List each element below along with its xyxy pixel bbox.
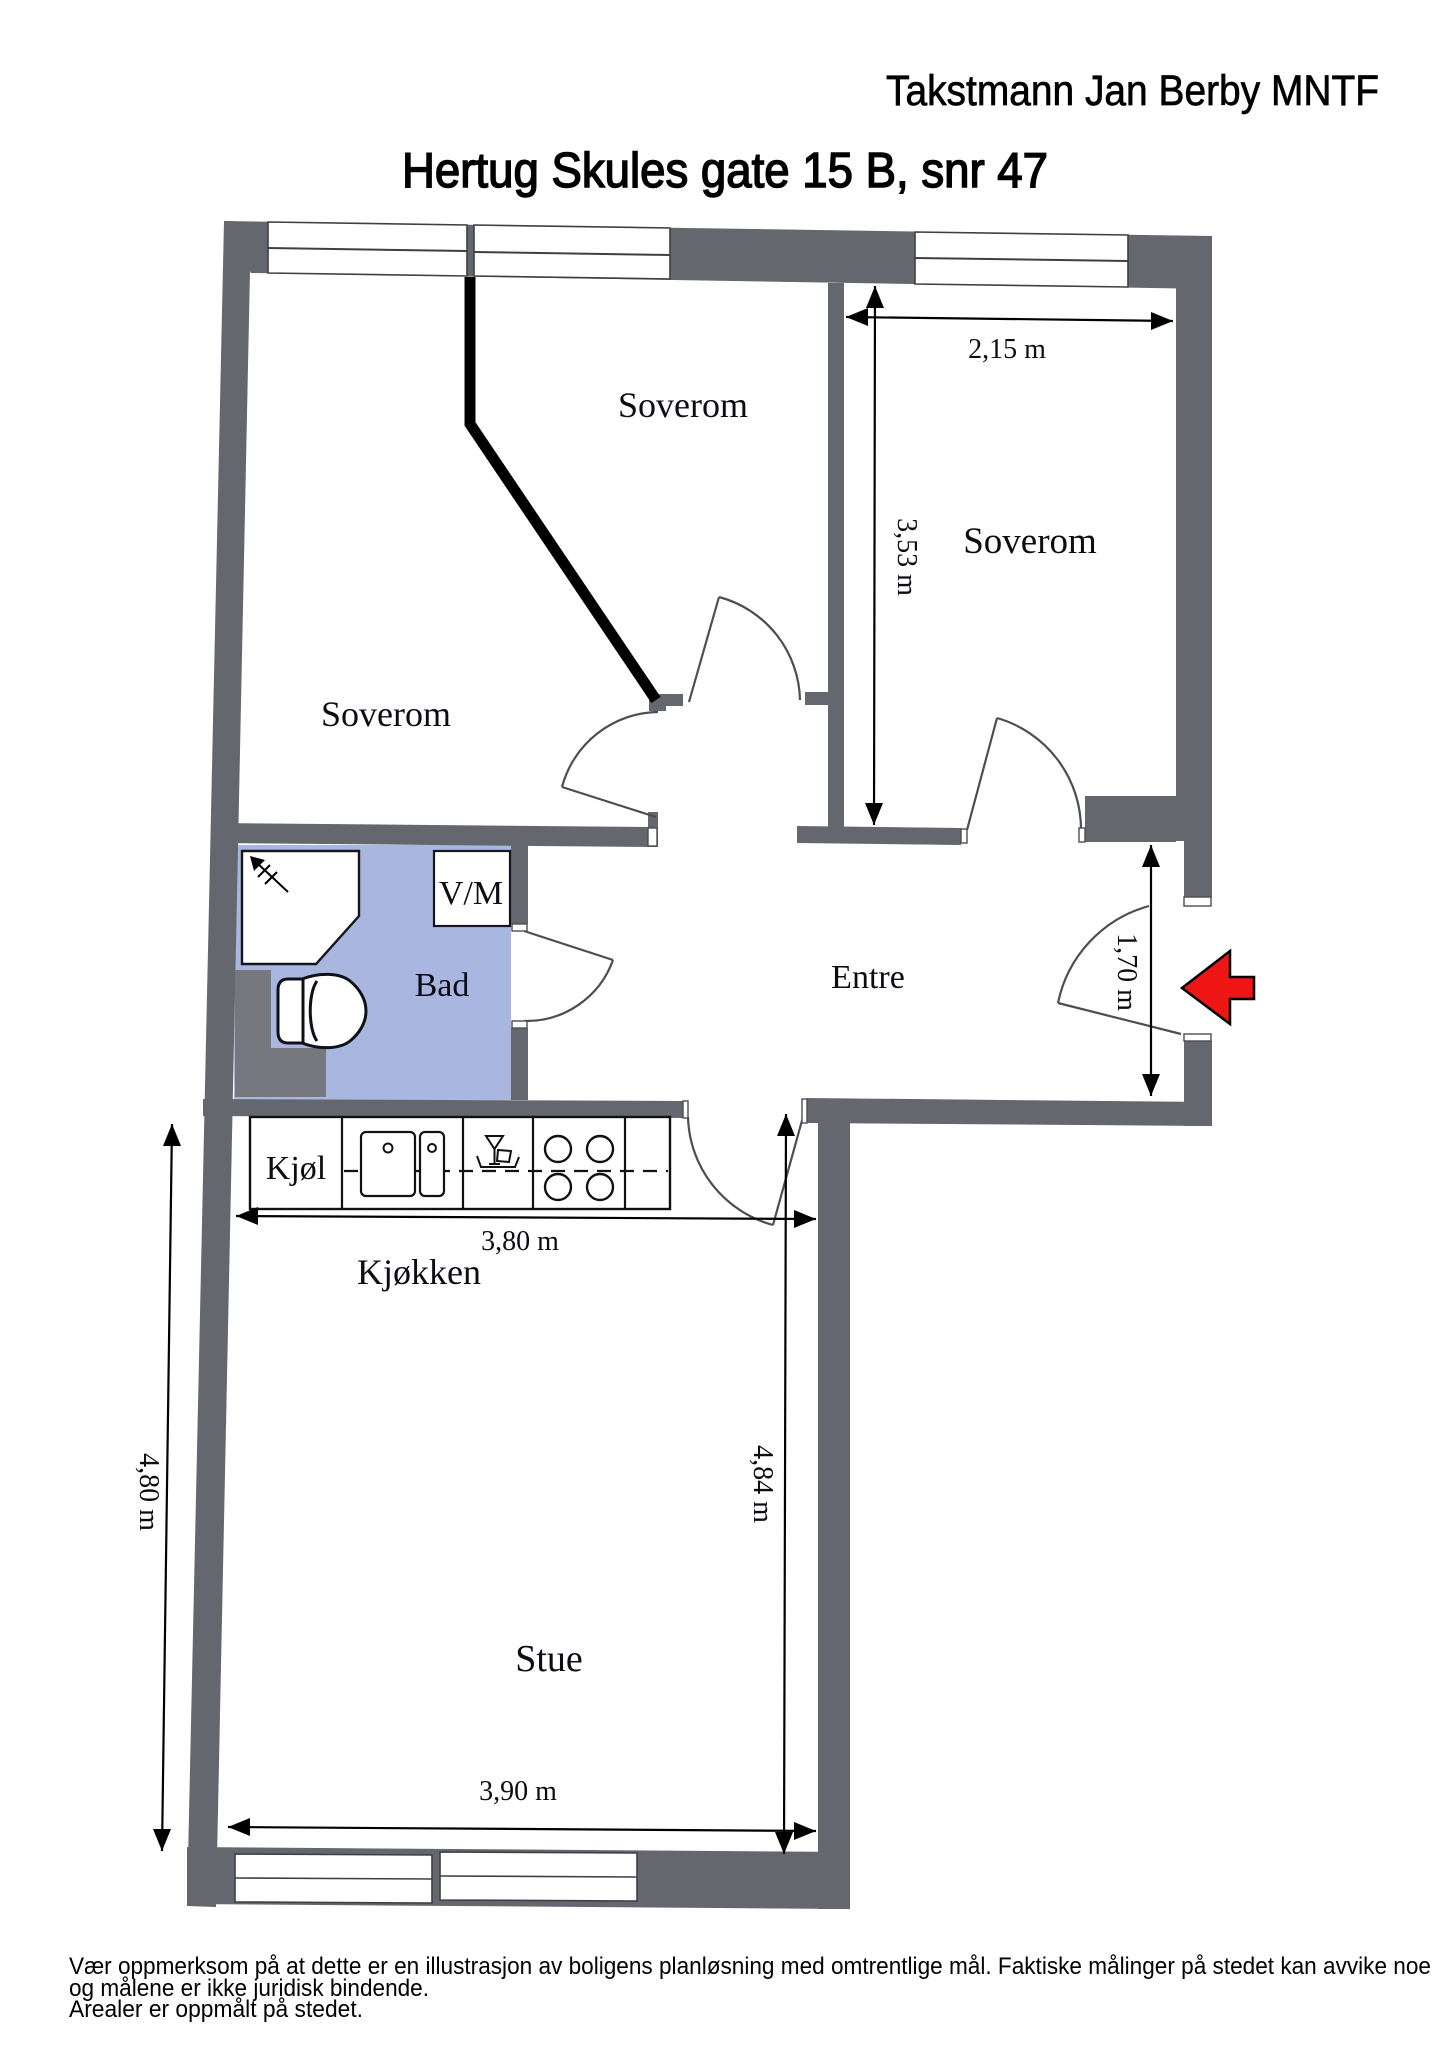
svg-text:3,80 m: 3,80 m xyxy=(481,1226,559,1257)
svg-text:Soverom: Soverom xyxy=(321,694,451,734)
svg-text:Hertug Skules gate 15 B, snr 4: Hertug Skules gate 15 B, snr 47 xyxy=(402,144,1048,198)
svg-text:Stue: Stue xyxy=(515,1638,583,1680)
svg-text:3,90 m: 3,90 m xyxy=(479,1776,557,1807)
svg-text:Kjøkken: Kjøkken xyxy=(357,1252,481,1292)
svg-text:V/M: V/M xyxy=(439,875,503,912)
svg-text:Bad: Bad xyxy=(415,967,470,1004)
svg-text:Takstmann Jan Berby MNTF: Takstmann Jan Berby MNTF xyxy=(886,67,1379,115)
svg-text:Arealer er oppmålt på stedet.: Arealer er oppmålt på stedet. xyxy=(69,1996,363,2023)
svg-text:Kjøl: Kjøl xyxy=(266,1150,326,1187)
svg-text:1,70 m: 1,70 m xyxy=(1111,933,1142,1011)
svg-text:4,84 m: 4,84 m xyxy=(747,1445,778,1523)
svg-text:Entre: Entre xyxy=(831,959,905,996)
svg-text:2,15 m: 2,15 m xyxy=(968,334,1046,365)
svg-text:3,53 m: 3,53 m xyxy=(891,518,922,596)
svg-text:4,80 m: 4,80 m xyxy=(133,1453,164,1531)
svg-text:Soverom: Soverom xyxy=(618,385,748,425)
svg-text:Soverom: Soverom xyxy=(963,521,1097,562)
